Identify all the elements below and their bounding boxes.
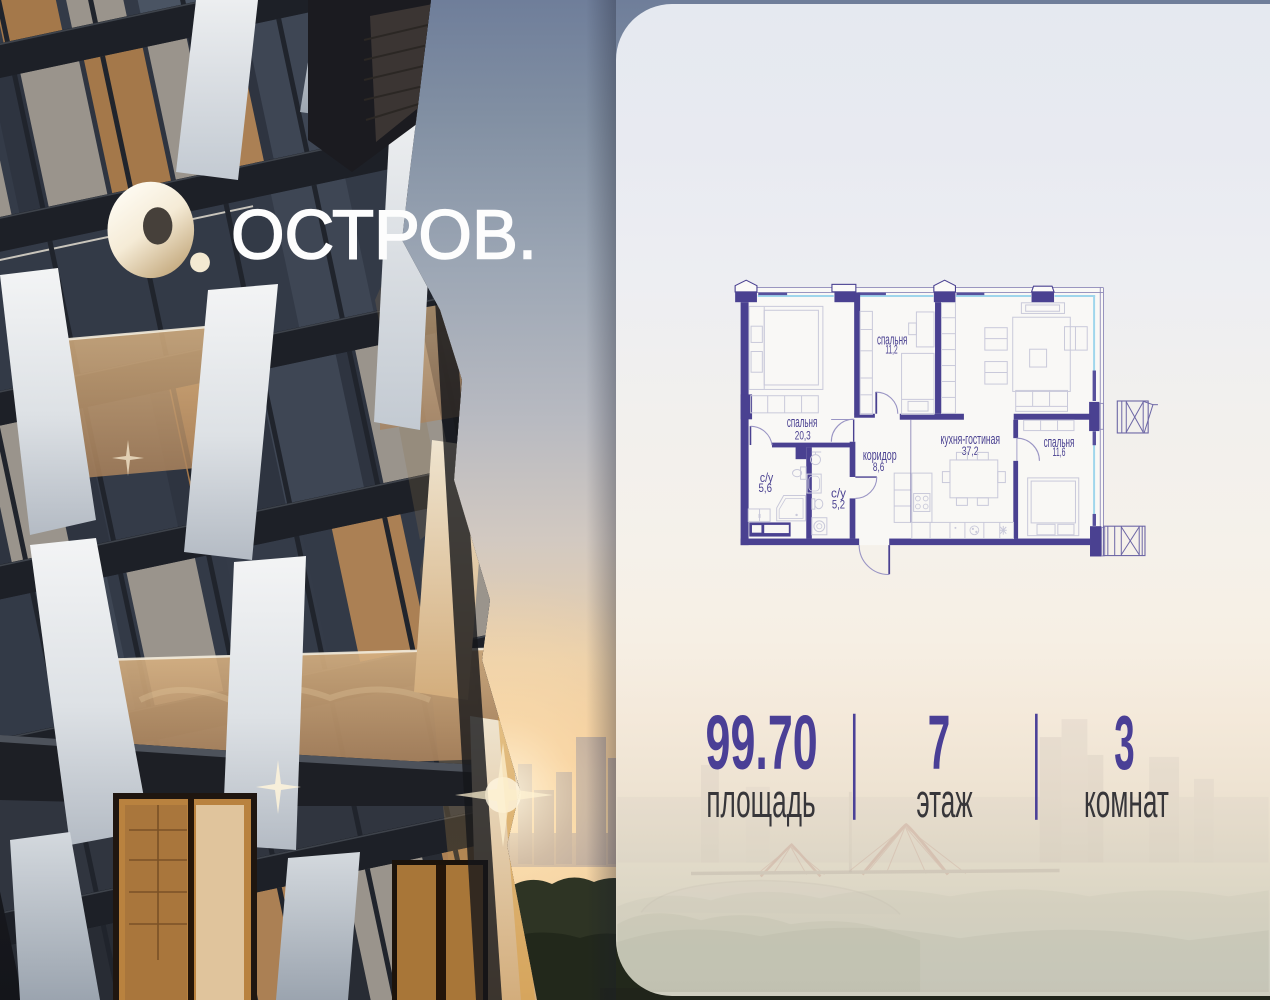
svg-text:7: 7 — [928, 701, 951, 786]
svg-text:11,2: 11,2 — [885, 342, 897, 356]
svg-text:площадь: площадь — [706, 775, 815, 827]
svg-text:комнат: комнат — [1084, 775, 1169, 827]
svg-text:99.70: 99.70 — [706, 701, 818, 786]
svg-text:5,2: 5,2 — [832, 497, 845, 511]
svg-text:8,6: 8,6 — [873, 460, 885, 474]
svg-text:этаж: этаж — [916, 775, 973, 827]
svg-text:37,2: 37,2 — [962, 444, 979, 458]
svg-text:3: 3 — [1114, 701, 1134, 786]
svg-text:5,6: 5,6 — [759, 481, 773, 495]
svg-text:ОСТРОВ.: ОСТРОВ. — [231, 195, 537, 273]
svg-text:20,3: 20,3 — [795, 429, 811, 443]
svg-text:11,6: 11,6 — [1053, 445, 1066, 459]
